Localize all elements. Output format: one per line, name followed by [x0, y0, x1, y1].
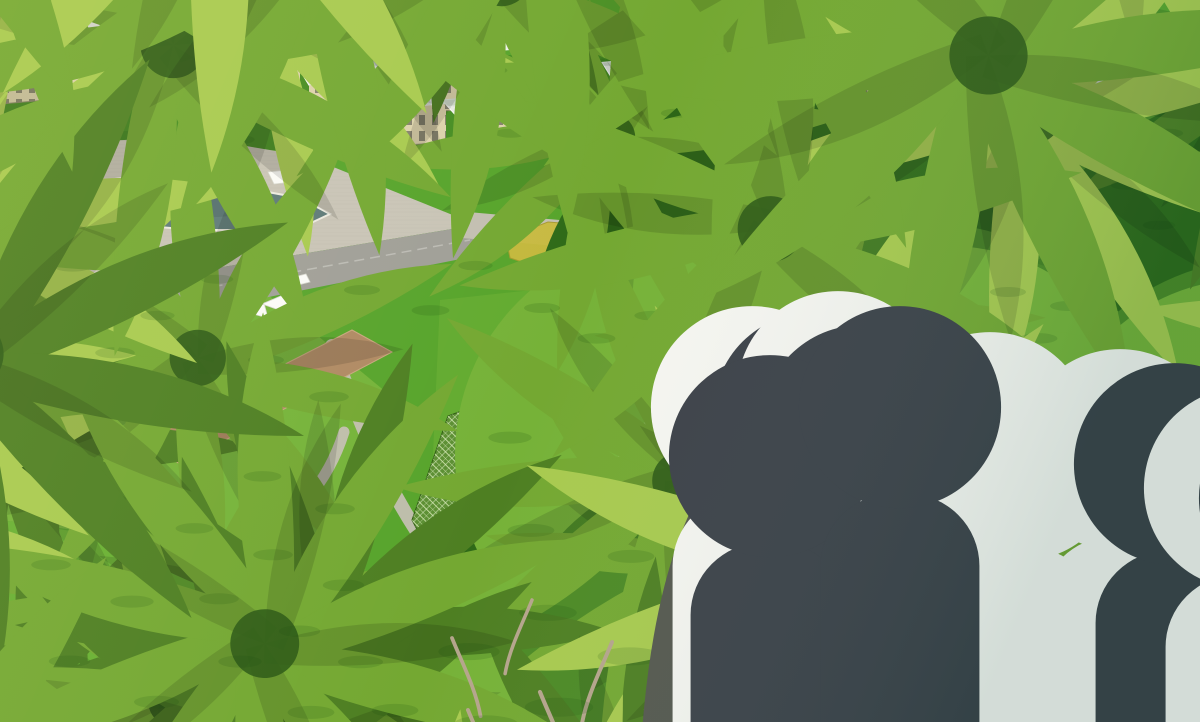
light-overlay — [0, 0, 1200, 722]
sunlight-tint — [0, 0, 1200, 722]
scene-svg — [0, 0, 1200, 722]
park-aerial-render — [0, 0, 1200, 722]
